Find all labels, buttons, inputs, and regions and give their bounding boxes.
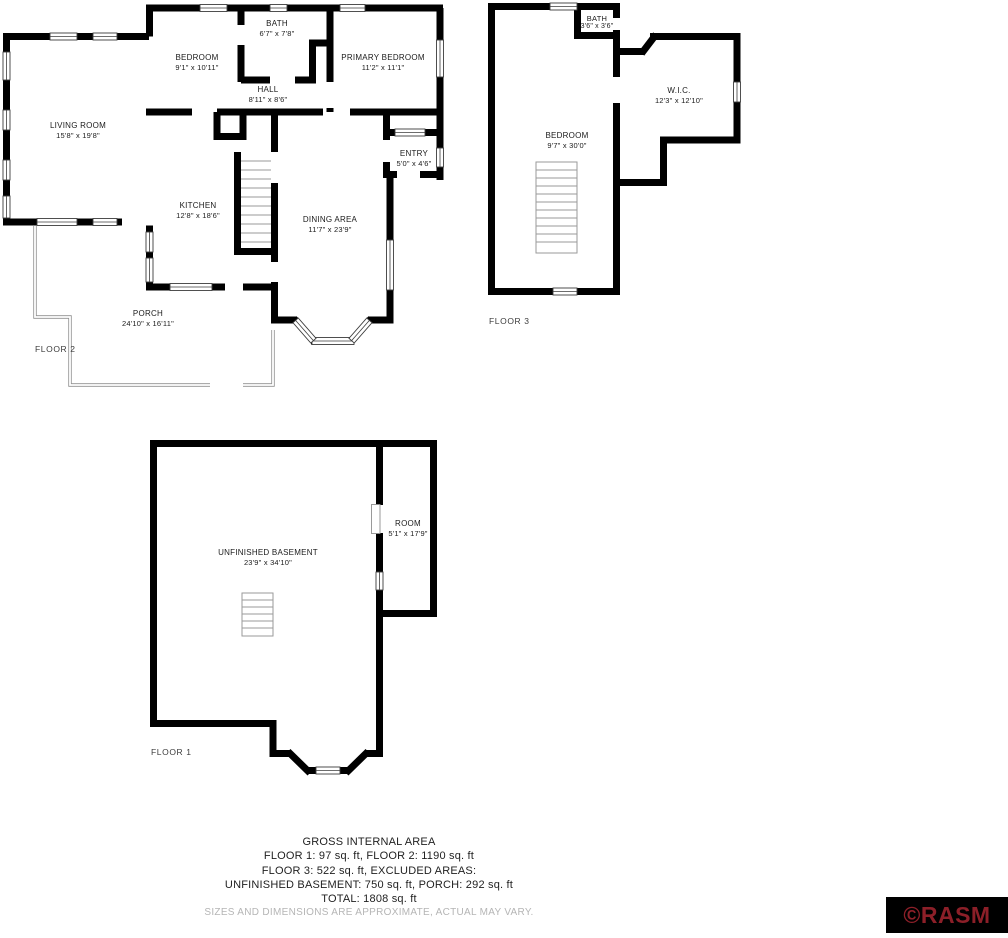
room-label-primary-bedroom: PRIMARY BEDROOM 11'2" x 11'1" bbox=[303, 53, 463, 72]
floor1-walls bbox=[150, 440, 437, 773]
room-dims: 6'7" x 7'8" bbox=[197, 29, 357, 38]
window bbox=[387, 240, 394, 290]
room-name: PORCH bbox=[68, 309, 228, 319]
summary-disclaimer: SIZES AND DIMENSIONS ARE APPROXIMATE, AC… bbox=[69, 906, 669, 920]
floor3-stairs bbox=[536, 162, 577, 253]
floor1-stairs bbox=[242, 593, 273, 636]
room-label-bedroom-f2: BEDROOM 9'1" x 10'11" bbox=[117, 53, 277, 72]
window bbox=[316, 767, 340, 774]
window bbox=[550, 3, 577, 10]
room-dims: 3'6" x 3'6" bbox=[517, 23, 677, 32]
room-label-bath-f2: BATH 6'7" x 7'8" bbox=[197, 19, 357, 38]
room-dims: 24'10" x 16'11" bbox=[68, 319, 228, 328]
room-label-hall: HALL 8'11" x 8'6" bbox=[188, 85, 348, 104]
window bbox=[376, 572, 383, 590]
window bbox=[146, 232, 153, 252]
summary-line: FLOOR 1: 97 sq. ft, FLOOR 2: 1190 sq. ft bbox=[69, 849, 669, 863]
window bbox=[293, 318, 316, 343]
room-name: BATH bbox=[197, 19, 357, 29]
room-name: ENTRY bbox=[334, 149, 494, 159]
summary-total: TOTAL: 1808 sq. ft bbox=[69, 892, 669, 906]
room-dims: 5'0" x 4'6" bbox=[334, 159, 494, 168]
room-name: BEDROOM bbox=[487, 131, 647, 141]
window bbox=[395, 129, 425, 136]
room-name: ROOM bbox=[328, 519, 488, 529]
room-label-wic: W.I.C. 12'3" x 12'10" bbox=[599, 86, 759, 105]
floor2-label: FLOOR 2 bbox=[35, 344, 76, 354]
floor1-plan bbox=[150, 440, 437, 774]
room-dims: 8'11" x 8'6" bbox=[188, 95, 348, 104]
rasm-watermark-text: ©RASM bbox=[903, 902, 990, 929]
room-label-porch: PORCH 24'10" x 16'11" bbox=[68, 309, 228, 328]
window bbox=[3, 52, 10, 80]
window bbox=[553, 288, 577, 295]
window bbox=[37, 219, 77, 226]
room-dims: 9'1" x 10'11" bbox=[117, 63, 277, 72]
room-name: BEDROOM bbox=[117, 53, 277, 63]
room-dims: 11'7" x 23'9" bbox=[250, 225, 410, 234]
room-name: W.I.C. bbox=[599, 86, 759, 96]
window bbox=[340, 5, 365, 12]
room-dims: 23'9" x 34'10" bbox=[188, 558, 348, 567]
window bbox=[93, 33, 117, 40]
floor3-label: FLOOR 3 bbox=[489, 316, 530, 326]
room-dims: 11'2" x 11'1" bbox=[303, 63, 463, 72]
window bbox=[200, 5, 227, 12]
window bbox=[93, 219, 117, 226]
summary-line: FLOOR 3: 522 sq. ft, EXCLUDED AREAS: bbox=[69, 864, 669, 878]
room-name: HALL bbox=[188, 85, 348, 95]
room-dims: 5'1" x 17'9" bbox=[328, 529, 488, 538]
room-dims: 15'8" x 19'8" bbox=[0, 131, 158, 140]
window bbox=[349, 318, 372, 343]
rasm-watermark: ©RASM bbox=[886, 897, 1008, 933]
window bbox=[3, 196, 10, 218]
room-label-room: ROOM 5'1" x 17'9" bbox=[328, 519, 488, 538]
summary-title: GROSS INTERNAL AREA bbox=[69, 835, 669, 849]
floor1-windows bbox=[316, 572, 383, 774]
room-dims: 12'3" x 12'10" bbox=[599, 96, 759, 105]
room-name: PRIMARY BEDROOM bbox=[303, 53, 463, 63]
room-label-entry: ENTRY 5'0" x 4'6" bbox=[334, 149, 494, 168]
floor1-label: FLOOR 1 bbox=[151, 747, 192, 757]
window bbox=[170, 284, 212, 291]
window bbox=[270, 5, 287, 12]
window bbox=[50, 33, 77, 40]
room-label-unfinished-basement: UNFINISHED BASEMENT 23'9" x 34'10" bbox=[188, 548, 348, 567]
window bbox=[146, 258, 153, 282]
room-dims: 9'7" x 30'0" bbox=[487, 141, 647, 150]
room-label-living-room: LIVING ROOM 15'8" x 19'8" bbox=[0, 121, 158, 140]
area-summary: GROSS INTERNAL AREA FLOOR 1: 97 sq. ft, … bbox=[69, 835, 669, 921]
room-name: UNFINISHED BASEMENT bbox=[188, 548, 348, 558]
room-name: LIVING ROOM bbox=[0, 121, 158, 131]
window bbox=[312, 338, 354, 345]
room-label-bath-f3: BATH 3'6" x 3'6" bbox=[517, 14, 677, 32]
room-label-bedroom-f3: BEDROOM 9'7" x 30'0" bbox=[487, 131, 647, 150]
room-name: BATH bbox=[517, 14, 677, 23]
room-label-dining-area: DINING AREA 11'7" x 23'9" bbox=[250, 215, 410, 234]
summary-line: UNFINISHED BASEMENT: 750 sq. ft, PORCH: … bbox=[69, 878, 669, 892]
room-name: KITCHEN bbox=[118, 201, 278, 211]
window bbox=[3, 160, 10, 180]
room-name: DINING AREA bbox=[250, 215, 410, 225]
floorplan-page: LIVING ROOM 15'8" x 19'8" BEDROOM 9'1" x… bbox=[0, 0, 1008, 938]
